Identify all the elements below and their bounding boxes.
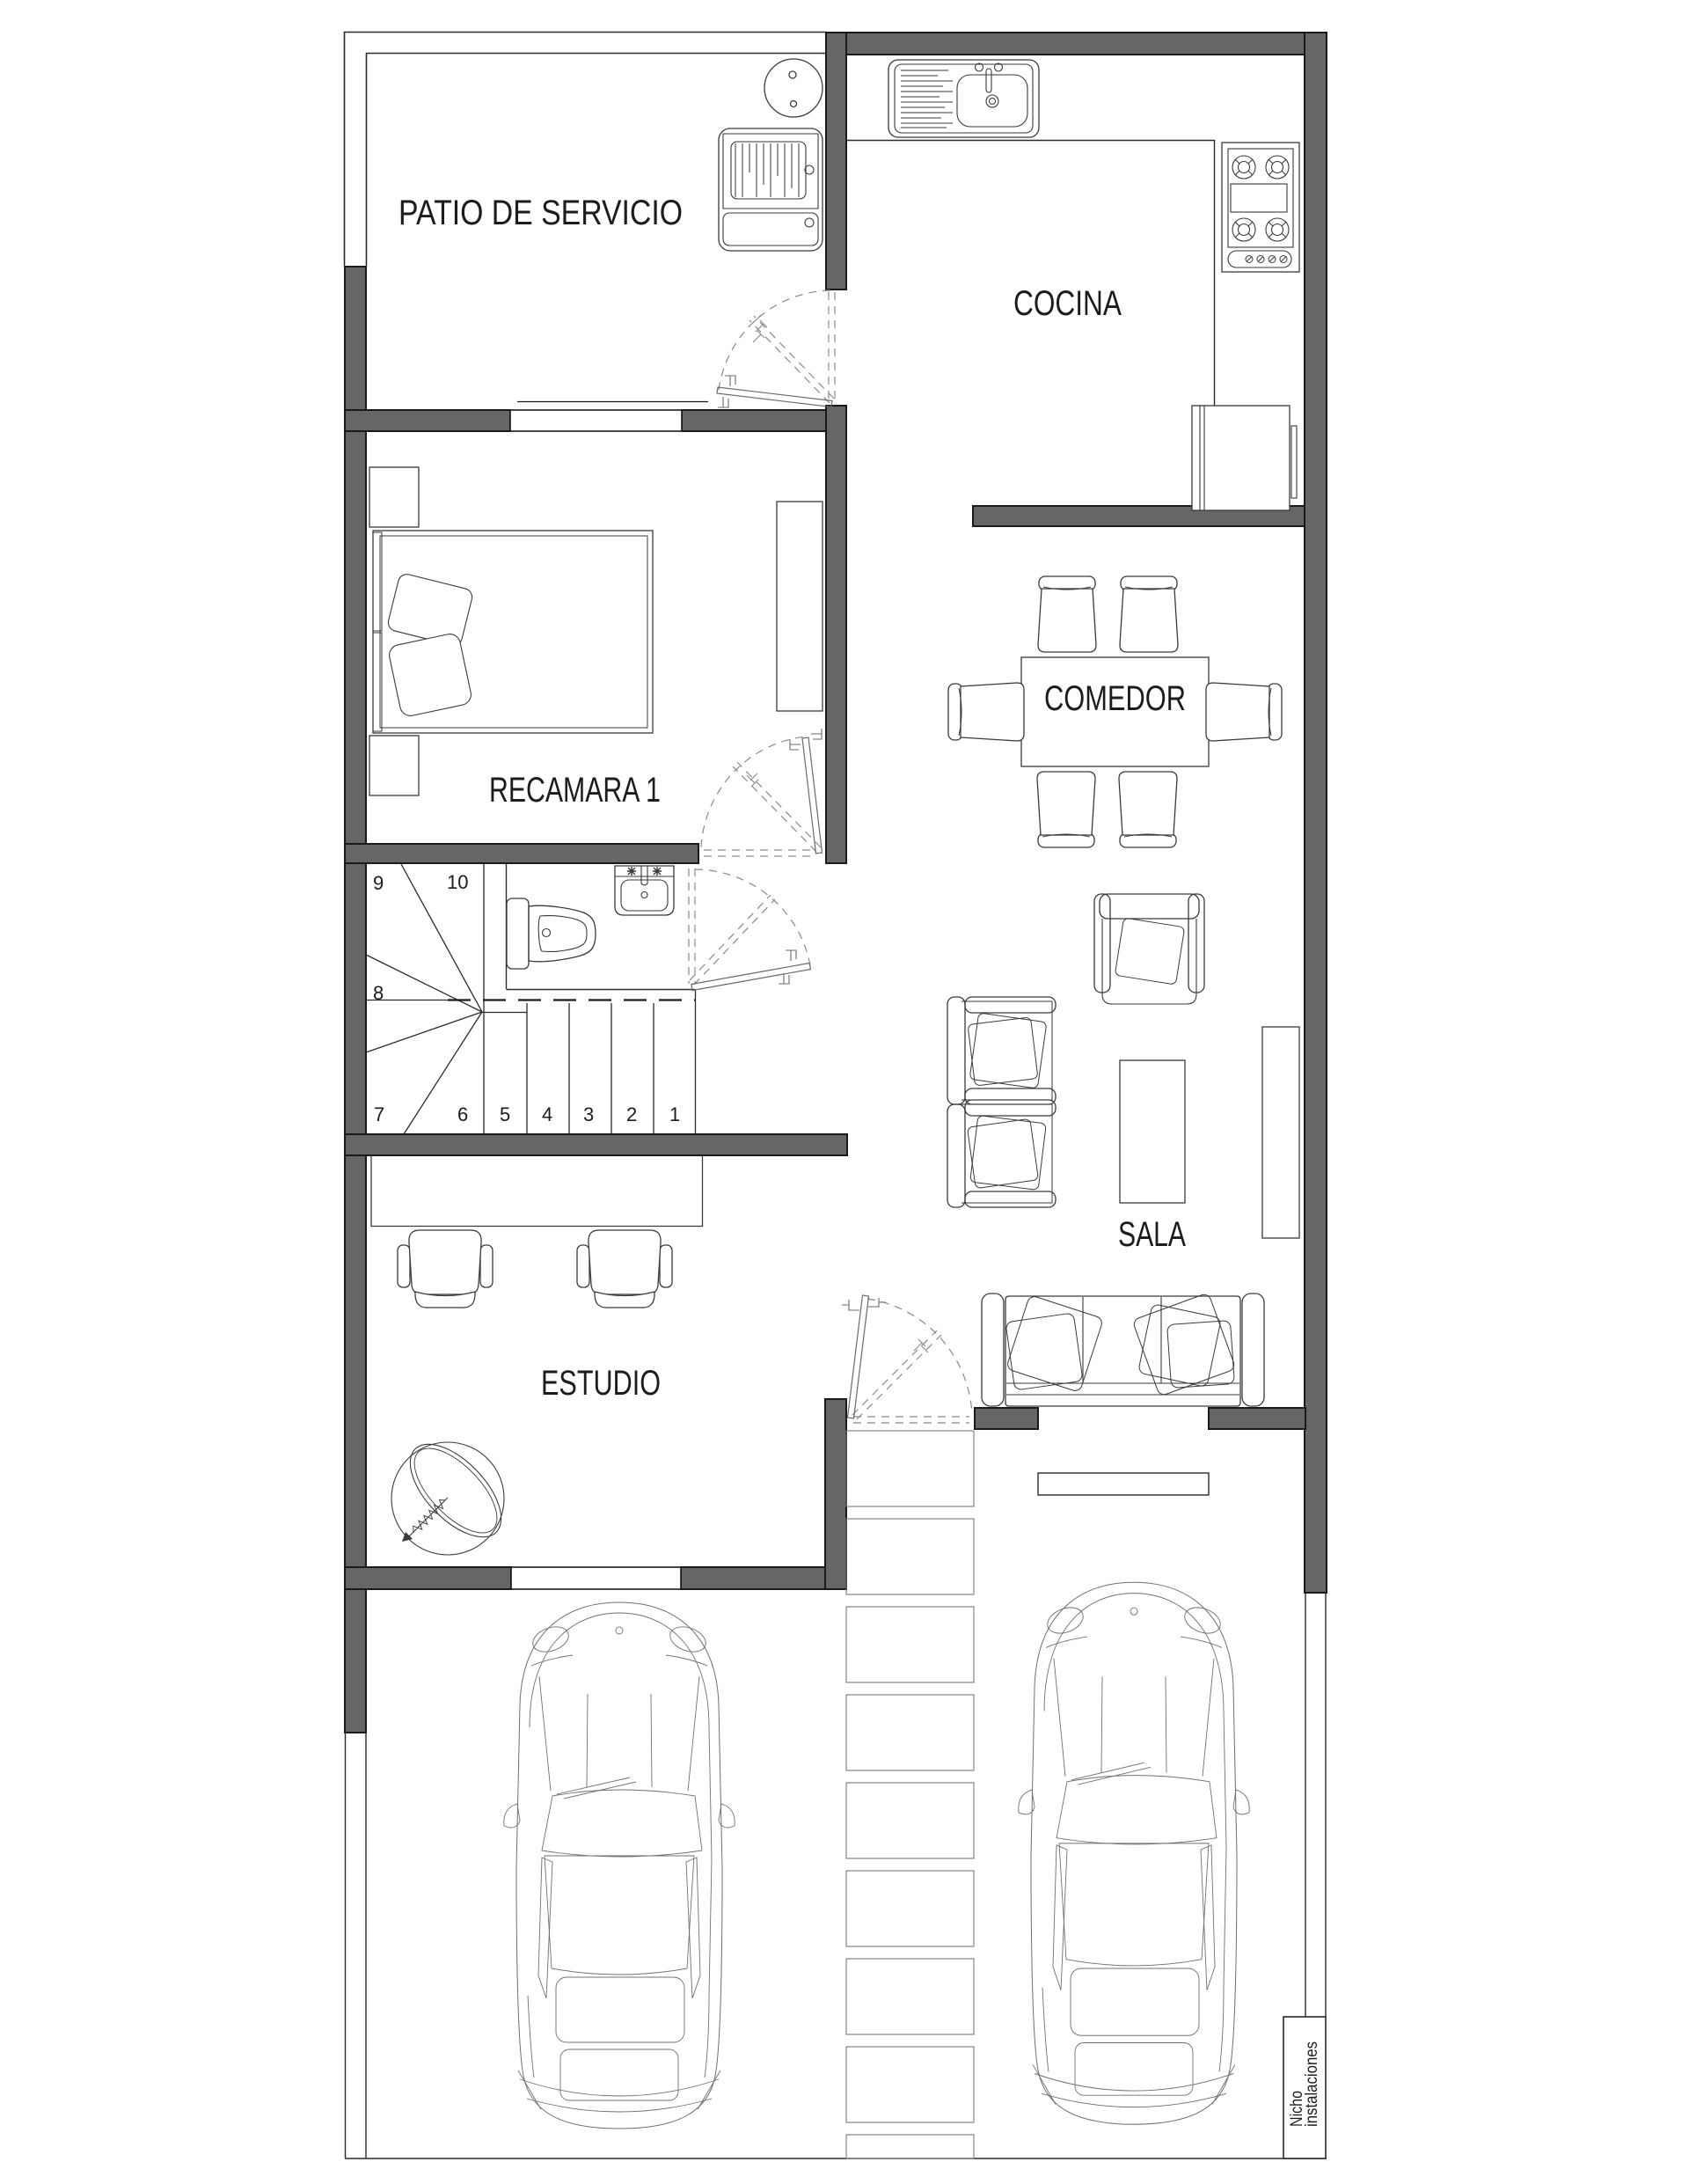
svg-text:8: 8 — [373, 982, 384, 1004]
svg-text:2: 2 — [626, 1103, 637, 1125]
svg-text:1: 1 — [669, 1103, 680, 1125]
svg-text:COCINA: COCINA — [1013, 284, 1122, 323]
svg-text:9: 9 — [373, 872, 384, 894]
svg-text:10: 10 — [447, 871, 468, 893]
svg-text:COMEDOR: COMEDOR — [1044, 679, 1186, 718]
svg-text:RECAMARA 1: RECAMARA 1 — [489, 771, 661, 810]
svg-text:4: 4 — [542, 1103, 552, 1125]
svg-text:5: 5 — [500, 1103, 510, 1125]
svg-text:3: 3 — [583, 1103, 594, 1125]
svg-text:6: 6 — [457, 1103, 468, 1125]
svg-text:PATIO DE SERVICIO: PATIO DE SERVICIO — [398, 194, 683, 232]
svg-text:7: 7 — [374, 1103, 384, 1125]
svg-text:ESTUDIO: ESTUDIO — [541, 1364, 661, 1403]
svg-text:SALA: SALA — [1118, 1215, 1186, 1254]
